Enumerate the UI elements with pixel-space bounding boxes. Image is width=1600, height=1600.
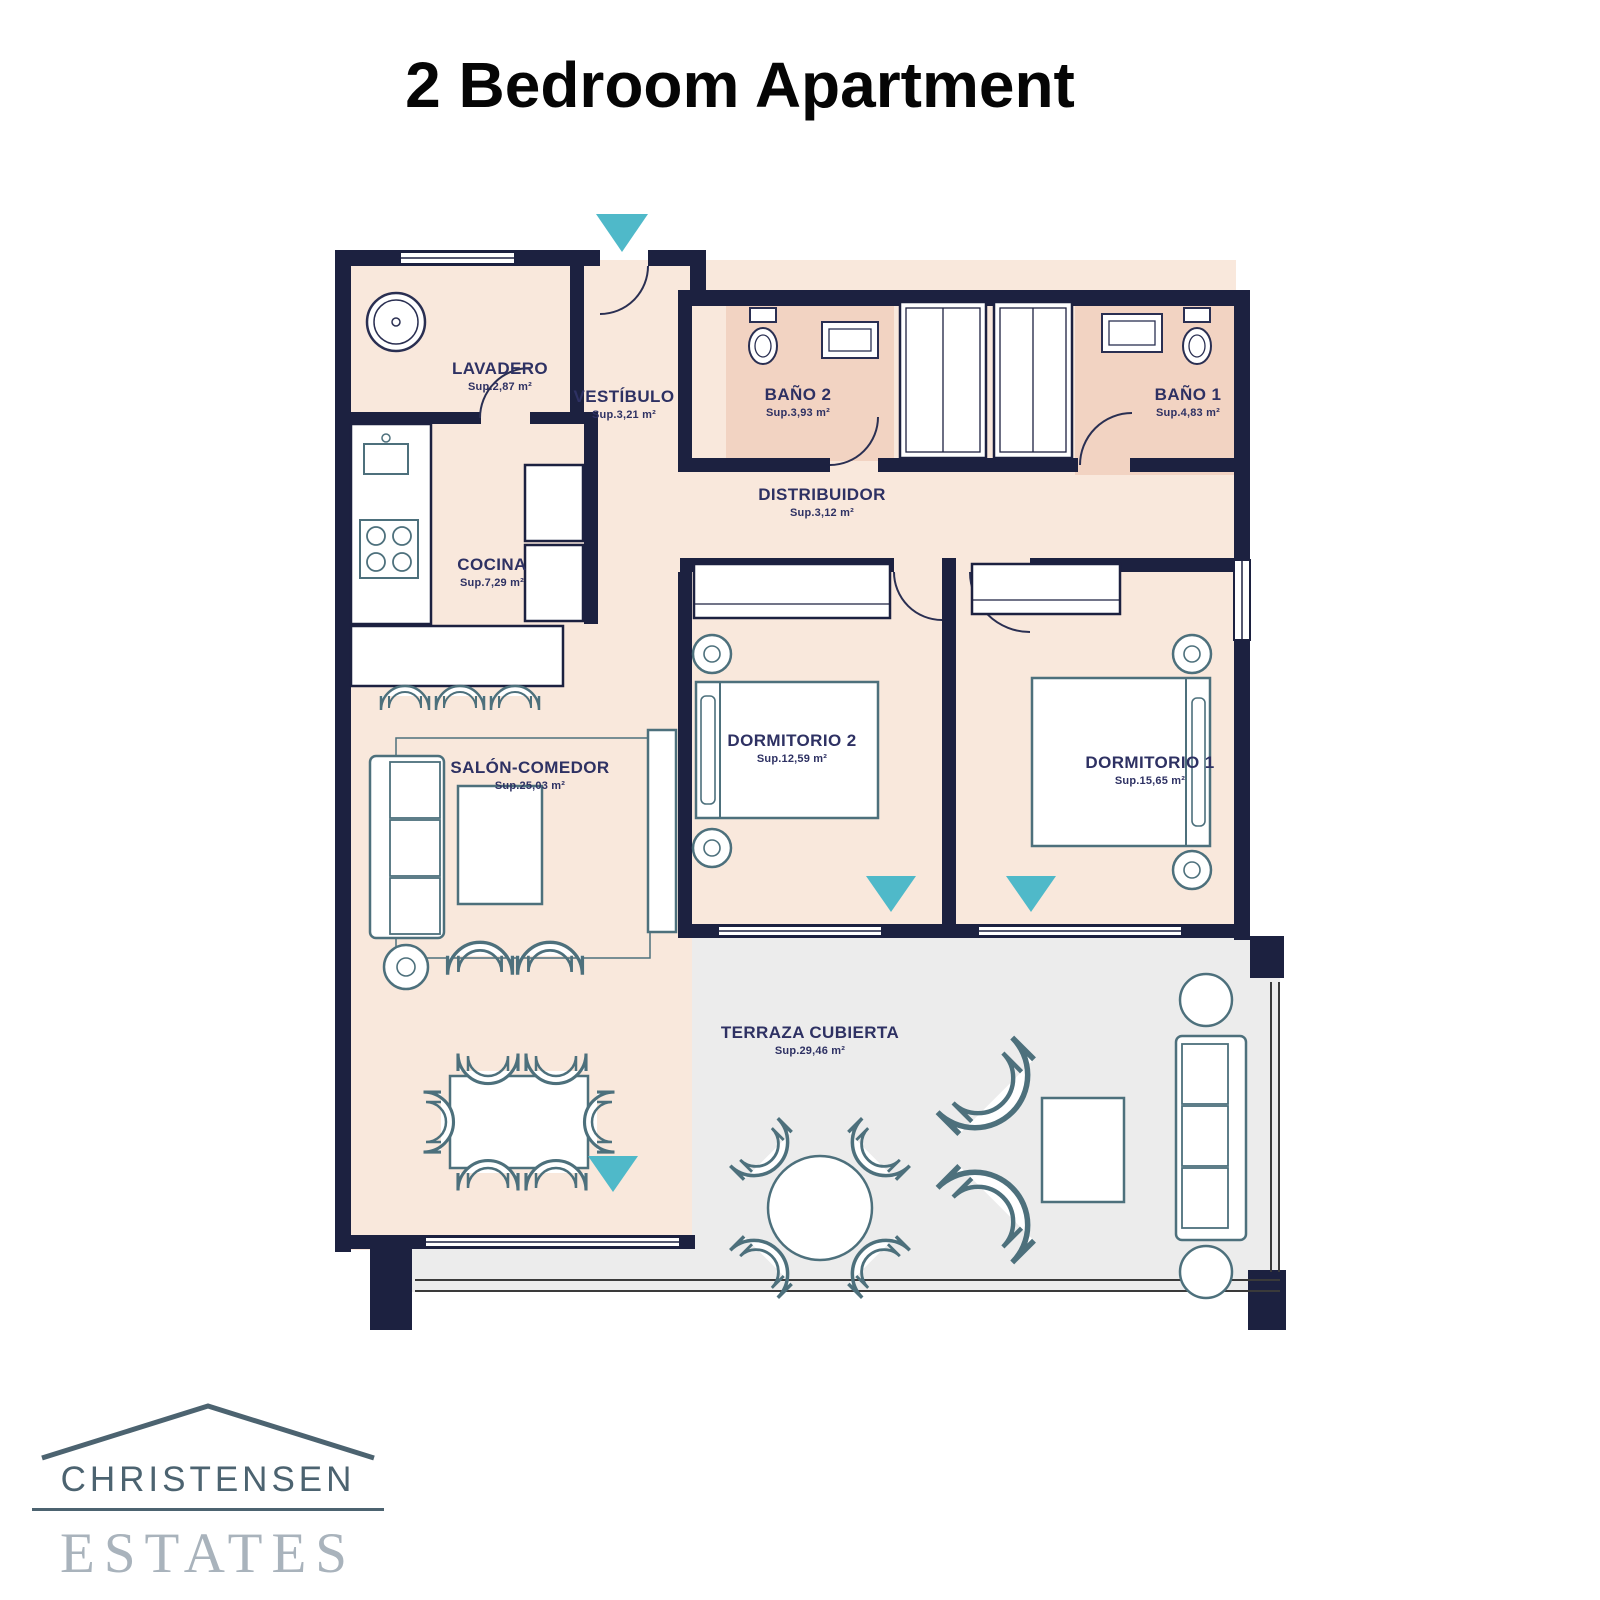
agency-logo: CHRISTENSEN ESTATES (28, 1396, 388, 1586)
kitchen-peninsula (351, 626, 563, 686)
side-table-icon (384, 945, 428, 989)
kitchen-sink-icon (364, 444, 408, 474)
wardrobe-icon (972, 564, 1120, 614)
toilet-icon (1183, 308, 1211, 364)
terrace-table-icon (1042, 1098, 1124, 1202)
coffee-table-icon (458, 786, 542, 904)
sink-icon (822, 322, 878, 358)
side-table-icon (1180, 974, 1232, 1026)
logo-divider (32, 1508, 384, 1511)
toilet-icon (749, 308, 777, 364)
sink-icon (1102, 314, 1162, 352)
stove-icon (360, 520, 418, 578)
bed-icon (696, 682, 878, 818)
entry-arrow-icon (596, 214, 648, 252)
floor-plan-drawing (330, 190, 1290, 1330)
fridge-icon (525, 465, 583, 541)
dining-table-icon (450, 1076, 588, 1168)
wardrobe-icon (900, 302, 1072, 458)
page-title: 2 Bedroom Apartment (0, 48, 1480, 122)
terrace-sofa-icon (1176, 1036, 1246, 1240)
floor-plan: LAVADEROSup.2,87 m² VESTÍBULOSup.3,21 m²… (330, 190, 1290, 1330)
round-table-icon (768, 1156, 872, 1260)
oven-tower-icon (525, 545, 583, 621)
logo-name: CHRISTENSEN (28, 1460, 388, 1500)
wardrobe-icon (694, 564, 890, 618)
side-table-icon (1180, 1246, 1232, 1298)
sofa-icon (370, 756, 444, 938)
logo-roof-icon (30, 1396, 386, 1464)
bed-icon (1032, 678, 1210, 846)
logo-subname: ESTATES (28, 1521, 388, 1586)
tv-unit-icon (648, 730, 676, 932)
washing-machine-icon (367, 293, 425, 351)
